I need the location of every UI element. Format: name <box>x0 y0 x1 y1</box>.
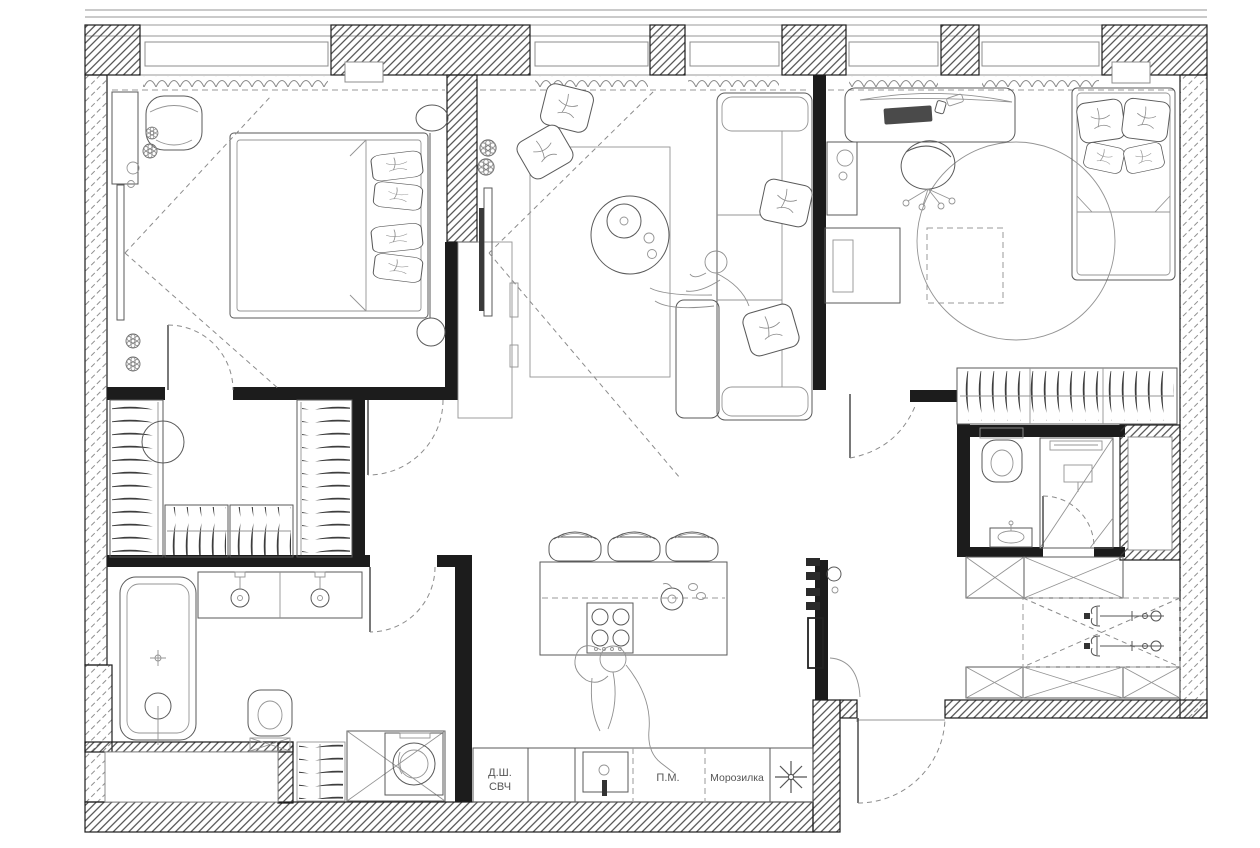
person-at-sink <box>575 646 674 773</box>
storage-cabinets-bottom <box>966 667 1180 698</box>
wall-entry-pier <box>813 700 840 832</box>
bike-storage <box>1023 598 1180 667</box>
entry-hall <box>830 557 1180 698</box>
label-microwave: СВЧ <box>489 781 511 793</box>
wall-bath-kitchen <box>455 567 472 802</box>
sofa <box>676 93 814 420</box>
floor-plan-page: Д.Ш. СВЧ П.М. Морозилка <box>0 0 1260 848</box>
single-bed <box>1072 88 1175 280</box>
walk-in-closet <box>110 400 352 557</box>
window <box>849 42 938 66</box>
wall-pier <box>650 25 685 75</box>
wall-bedroom-south <box>107 387 165 400</box>
keyboard-icon <box>884 105 933 124</box>
round-rug <box>917 142 1115 340</box>
label-oven: Д.Ш. <box>488 767 512 779</box>
chaise <box>676 300 719 418</box>
wardrobe-rail-right <box>297 400 352 557</box>
bicycle-icon <box>1084 606 1164 626</box>
wall-stub <box>840 700 857 718</box>
phone-icon <box>946 94 964 107</box>
bar-stool <box>666 532 718 561</box>
curtain-icon <box>688 76 779 87</box>
plant-icon <box>146 127 158 139</box>
washing-machine <box>347 731 445 801</box>
cooktop <box>587 603 633 653</box>
door-kid-bedroom <box>850 394 916 458</box>
curtain-icon <box>849 76 938 87</box>
bathroom-second <box>980 428 1113 548</box>
toy-bench <box>825 228 900 303</box>
mouse-icon <box>935 100 947 114</box>
bar-stool <box>549 532 601 561</box>
desk <box>845 88 1015 142</box>
washbasin <box>990 521 1032 547</box>
play-mat <box>927 228 1003 303</box>
tv-panel <box>117 185 124 320</box>
plant-icon <box>143 144 157 158</box>
shower <box>1040 438 1113 548</box>
wall-bath2-west <box>957 424 970 557</box>
bathtub <box>120 577 196 745</box>
door-master-bedroom <box>168 325 233 390</box>
window <box>145 42 328 66</box>
wall-pier <box>782 25 846 75</box>
shaft <box>1120 425 1180 560</box>
wall-living-kidroom <box>813 75 826 390</box>
window <box>982 42 1099 66</box>
curtain-icon <box>982 76 1099 87</box>
bar-stool <box>608 532 660 561</box>
wall-closet-east <box>352 400 365 567</box>
sofa-pillow <box>758 177 814 228</box>
wall-bath2-south <box>957 547 1043 557</box>
kid-bedroom <box>825 88 1177 424</box>
curtain-icon <box>143 76 328 87</box>
wall-bath-north <box>437 555 472 567</box>
curtains <box>112 76 1177 90</box>
wall-right <box>1180 75 1207 718</box>
sofa-pillow <box>741 302 802 358</box>
pier-notch <box>1112 62 1150 83</box>
wardrobe-rail-bottom <box>165 505 293 557</box>
plant-icon <box>126 357 140 371</box>
armchair <box>146 96 202 150</box>
label-freezer: Морозилка <box>710 772 764 784</box>
wardrobe <box>957 368 1177 424</box>
door-bathroom-main <box>370 567 435 632</box>
bicycle-icon <box>1084 636 1164 656</box>
person-on-sofa <box>650 251 749 308</box>
door-bathroom-second <box>1043 496 1094 547</box>
master-bedroom <box>112 92 448 390</box>
dresser <box>112 92 139 188</box>
kitchen: Д.Ш. СВЧ П.М. Морозилка <box>473 532 841 802</box>
sink-cabinet <box>583 752 628 796</box>
wall-bedroom-south <box>233 387 448 400</box>
rug <box>530 147 670 377</box>
nightstand <box>416 105 448 131</box>
label-dishwasher: П.М. <box>656 772 679 784</box>
wall-left <box>85 75 107 665</box>
coffee-table <box>591 196 669 274</box>
storage-cabinets-top <box>966 557 1123 598</box>
living-room <box>458 82 814 478</box>
base-cabinets: Д.Ш. СВЧ П.М. Морозилка <box>473 748 813 802</box>
island <box>540 562 727 655</box>
nightstand <box>417 318 445 346</box>
pier-notch <box>345 62 383 82</box>
door-entry <box>857 718 945 803</box>
plant-icon <box>126 334 140 348</box>
double-bed <box>230 133 430 318</box>
window <box>690 42 779 66</box>
cabinet <box>827 142 857 215</box>
wall-bedroom-living <box>445 242 458 400</box>
island-sink <box>661 584 706 611</box>
wall-pier <box>941 25 979 75</box>
double-vanity <box>198 572 362 618</box>
fridge-snowflake-icon <box>775 761 807 793</box>
door-corridor-north <box>368 400 443 475</box>
tv-icon <box>479 208 484 311</box>
wall-pier <box>85 25 140 75</box>
wardrobe-rail-left <box>110 400 163 557</box>
desk-chair <box>896 135 960 210</box>
floor-pillow <box>514 122 577 182</box>
console-curve <box>830 658 860 697</box>
window <box>535 42 648 66</box>
wall-bottom <box>85 802 813 832</box>
tv-view-cone <box>125 95 280 390</box>
floor-plan-drawing: Д.Ш. СВЧ П.М. Морозилка <box>0 0 1260 848</box>
plant-icon <box>480 140 496 156</box>
plant-icon <box>478 159 494 175</box>
towel-rack <box>297 742 345 801</box>
wall-bedroom-living <box>447 75 477 242</box>
wall-bath2-north <box>957 425 1125 437</box>
wall-kidroom-south <box>910 390 957 402</box>
wall-kitchen-hall <box>815 560 828 700</box>
wall-bottom-right <box>945 700 1207 718</box>
